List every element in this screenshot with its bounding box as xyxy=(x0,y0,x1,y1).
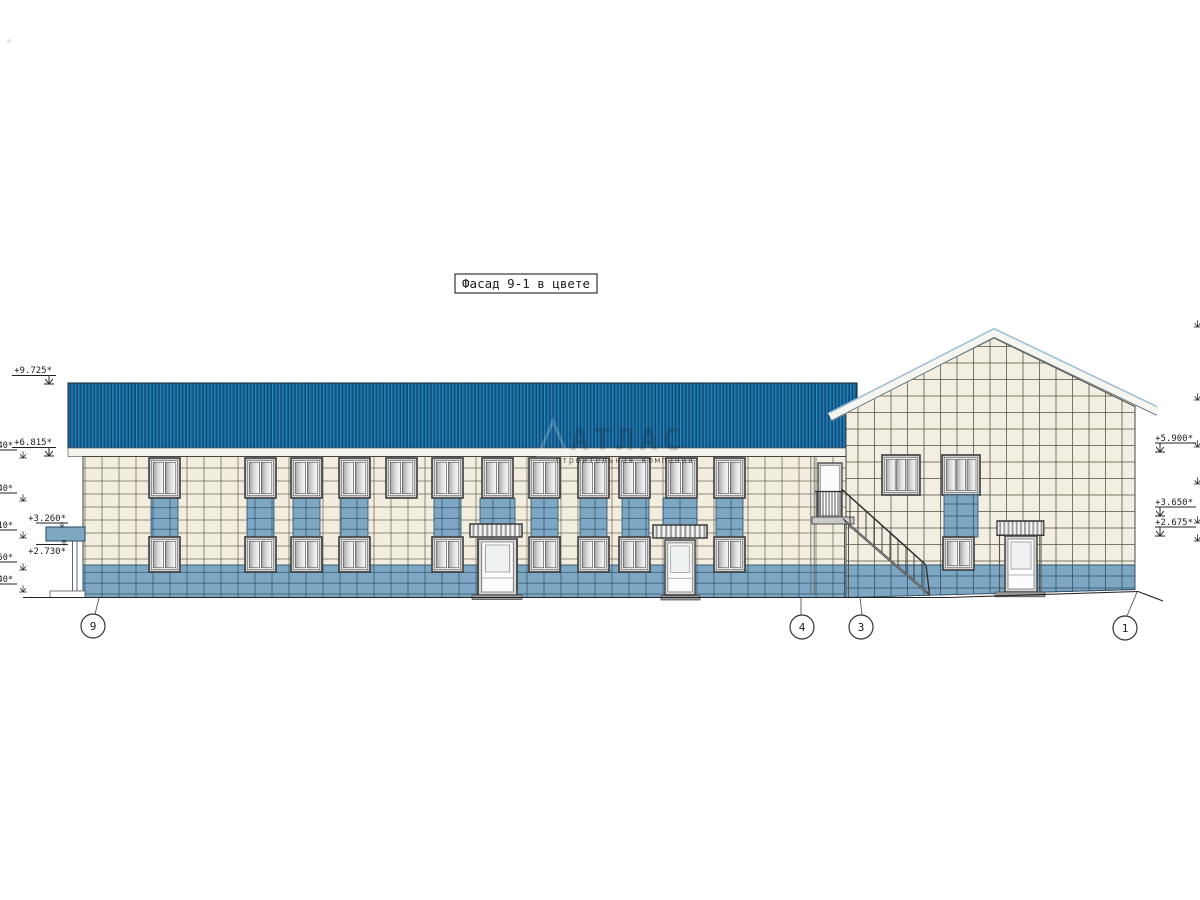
door-canopy xyxy=(997,521,1044,535)
window-lower xyxy=(619,537,650,572)
elevation-arrow-icon xyxy=(1155,507,1165,516)
window-upper xyxy=(482,458,513,498)
gable-window-upper xyxy=(942,455,980,495)
axis-label: 4 xyxy=(799,621,806,634)
drawing-sheet: Фасад 9-1 в цвете xyxy=(0,0,1200,900)
elevation-arrow-icon xyxy=(1194,393,1200,400)
elevation-marker-partial: 40* xyxy=(0,484,27,501)
elevation-marker: +3.260* xyxy=(28,514,68,527)
window-lower xyxy=(291,537,322,572)
elevation-arrow-icon xyxy=(19,451,27,458)
elevation-value: +2.675* xyxy=(1155,518,1193,528)
window-lower xyxy=(714,537,745,572)
elevation-arrow-icon xyxy=(19,563,27,570)
window-upper xyxy=(149,458,180,498)
window-lower xyxy=(432,537,463,572)
elevation-arrow-icon xyxy=(19,531,27,538)
entrance-door xyxy=(1005,536,1037,592)
elevation-arrow-icon xyxy=(1194,320,1200,327)
roof-fascia xyxy=(68,448,846,457)
elevation-arrow-icon xyxy=(1155,443,1165,452)
elevation-arrow-icon xyxy=(1194,440,1200,447)
elevation-arrow-icon xyxy=(1194,477,1200,484)
elevation-arrow-icon xyxy=(44,447,54,456)
elevation-marker: +3.650* xyxy=(1155,498,1196,516)
window-upper xyxy=(291,458,322,498)
elevation-value: 10* xyxy=(0,521,13,531)
elevation-marker: +6.815* xyxy=(12,438,56,456)
elevation-marker: +2.675* xyxy=(1155,518,1196,536)
elevation-arrow-icon xyxy=(19,585,27,592)
elevation-value: +6.815* xyxy=(14,438,52,448)
elevation-arrow-icon xyxy=(19,494,27,501)
stray-mark xyxy=(7,39,11,43)
gable-spandrel xyxy=(944,495,978,537)
elevation-value: 40* xyxy=(0,484,13,494)
window-upper xyxy=(432,458,463,498)
elevation-marker-partial: 50* xyxy=(0,553,27,570)
elevation-value: 50* xyxy=(0,553,13,563)
elevation-marker: +5.900* xyxy=(1155,434,1196,452)
elevation-arrow-icon xyxy=(1155,527,1165,536)
elevation-marker: +9.725* xyxy=(12,366,56,384)
gable-section xyxy=(830,329,1157,598)
gable-window-upper xyxy=(882,455,920,495)
axis-label: 1 xyxy=(1122,622,1129,635)
elevation-arrow-icon xyxy=(1194,534,1200,541)
canopy-posts xyxy=(73,541,78,591)
elevation-value: +3.650* xyxy=(1155,498,1193,508)
side-entrance-left xyxy=(46,527,85,598)
elevation-markers-right-edge xyxy=(1194,320,1200,541)
door-canopy xyxy=(470,524,522,537)
entrance-door xyxy=(665,540,695,595)
elevation-value: +2.730* xyxy=(28,547,66,557)
elevation-value: +9.725* xyxy=(14,366,52,376)
elevation-marker: +2.730* xyxy=(28,541,68,558)
window-upper xyxy=(714,458,745,498)
window-lower xyxy=(339,537,370,572)
watermark-name: АТЛАС xyxy=(570,423,685,458)
elevation-markers-right: +5.900* +3.650* +2.675* xyxy=(1155,320,1200,541)
axis-markers: 9 4 3 1 xyxy=(81,592,1137,640)
window-lower xyxy=(245,537,276,572)
entrance-door xyxy=(478,539,517,595)
window-lower xyxy=(578,537,609,572)
window-upper xyxy=(339,458,370,498)
elevation-arrow-icon xyxy=(44,375,54,384)
facade-drawing-canvas: Фасад 9-1 в цвете xyxy=(0,0,1200,900)
window-upper xyxy=(386,458,417,498)
elevation-marker-partial: 40* xyxy=(0,575,27,592)
drawing-title: Фасад 9-1 в цвете xyxy=(462,276,590,291)
title-box: Фасад 9-1 в цвете xyxy=(455,274,597,293)
elevation-value: 40* xyxy=(0,575,13,585)
axis-label: 3 xyxy=(858,621,865,634)
elevation-value: +5.900* xyxy=(1155,434,1193,444)
watermark-tagline: строительная компания xyxy=(556,456,695,466)
axis-label: 9 xyxy=(90,620,97,633)
elevation-value: +3.260* xyxy=(28,514,66,524)
porch-step xyxy=(50,591,85,598)
elevation-value: 40* xyxy=(0,441,13,451)
window-lower xyxy=(529,537,560,572)
elevation-arrow-icon xyxy=(1194,516,1200,523)
door-canopy xyxy=(653,525,707,538)
elevation-marker-partial: 10* xyxy=(0,521,27,538)
main-roof xyxy=(68,383,857,448)
side-canopy xyxy=(46,527,85,541)
gable-window-lower xyxy=(943,537,974,570)
window-lower xyxy=(149,537,180,572)
main-building xyxy=(46,383,857,600)
elevation-markers-left-edge: 40* 40* 10* 50* 40* xyxy=(0,441,27,592)
window-upper xyxy=(245,458,276,498)
entrance-1 xyxy=(470,524,522,600)
